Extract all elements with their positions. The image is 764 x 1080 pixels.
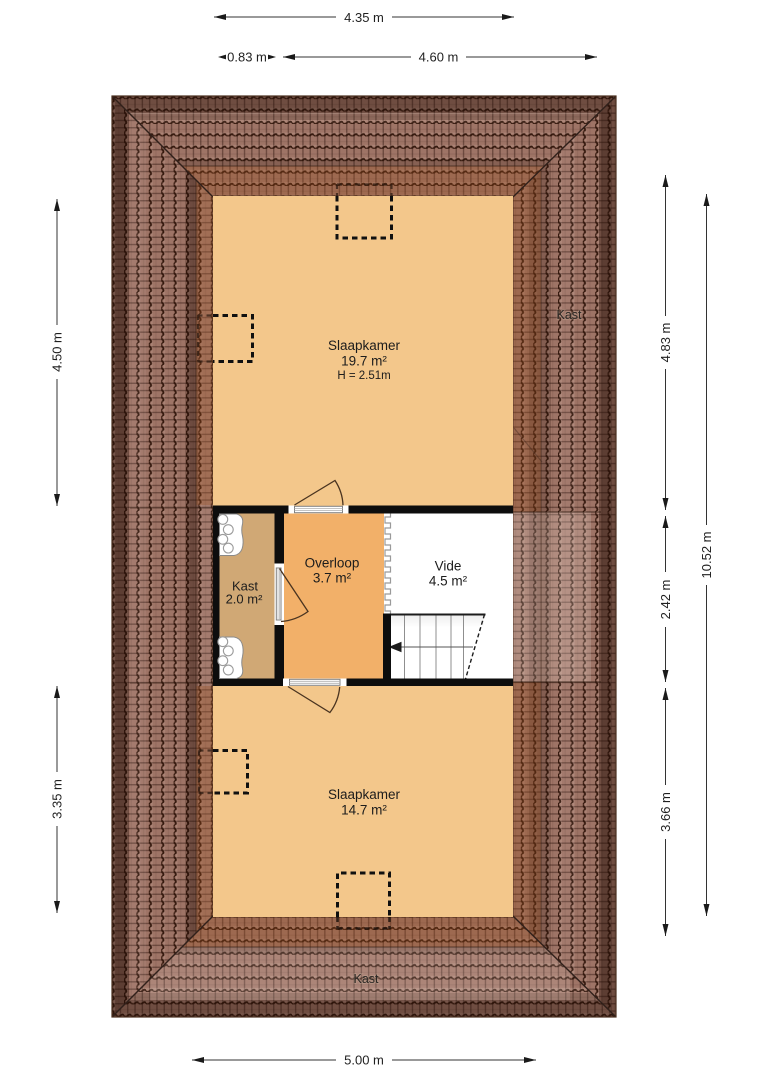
svg-text:4.50 m: 4.50 m [50, 332, 65, 372]
svg-text:2.0 m²: 2.0 m² [226, 592, 264, 607]
svg-text:3.35 m: 3.35 m [50, 779, 65, 819]
svg-text:Kast: Kast [353, 972, 379, 986]
svg-text:Kast: Kast [556, 308, 582, 322]
svg-text:Vide: Vide [435, 559, 462, 574]
svg-text:H = 2.51m: H = 2.51m [337, 370, 390, 382]
svg-text:14.7 m²: 14.7 m² [341, 803, 387, 818]
svg-text:19.7 m²: 19.7 m² [341, 354, 387, 369]
svg-text:Slaapkamer: Slaapkamer [328, 338, 401, 353]
svg-text:4.5 m²: 4.5 m² [429, 574, 468, 589]
svg-text:3.7 m²: 3.7 m² [313, 571, 352, 586]
svg-text:Overloop: Overloop [305, 556, 360, 571]
svg-text:0.83 m: 0.83 m [227, 50, 267, 65]
svg-text:4.60 m: 4.60 m [419, 50, 459, 65]
svg-text:3.66 m: 3.66 m [658, 792, 673, 832]
svg-text:4.35 m: 4.35 m [344, 10, 384, 25]
svg-text:Slaapkamer: Slaapkamer [328, 787, 401, 802]
svg-text:5.00 m: 5.00 m [344, 1053, 384, 1068]
svg-text:2.42 m: 2.42 m [658, 580, 673, 620]
svg-text:4.83 m: 4.83 m [658, 323, 673, 363]
svg-text:10.52 m: 10.52 m [699, 532, 714, 579]
